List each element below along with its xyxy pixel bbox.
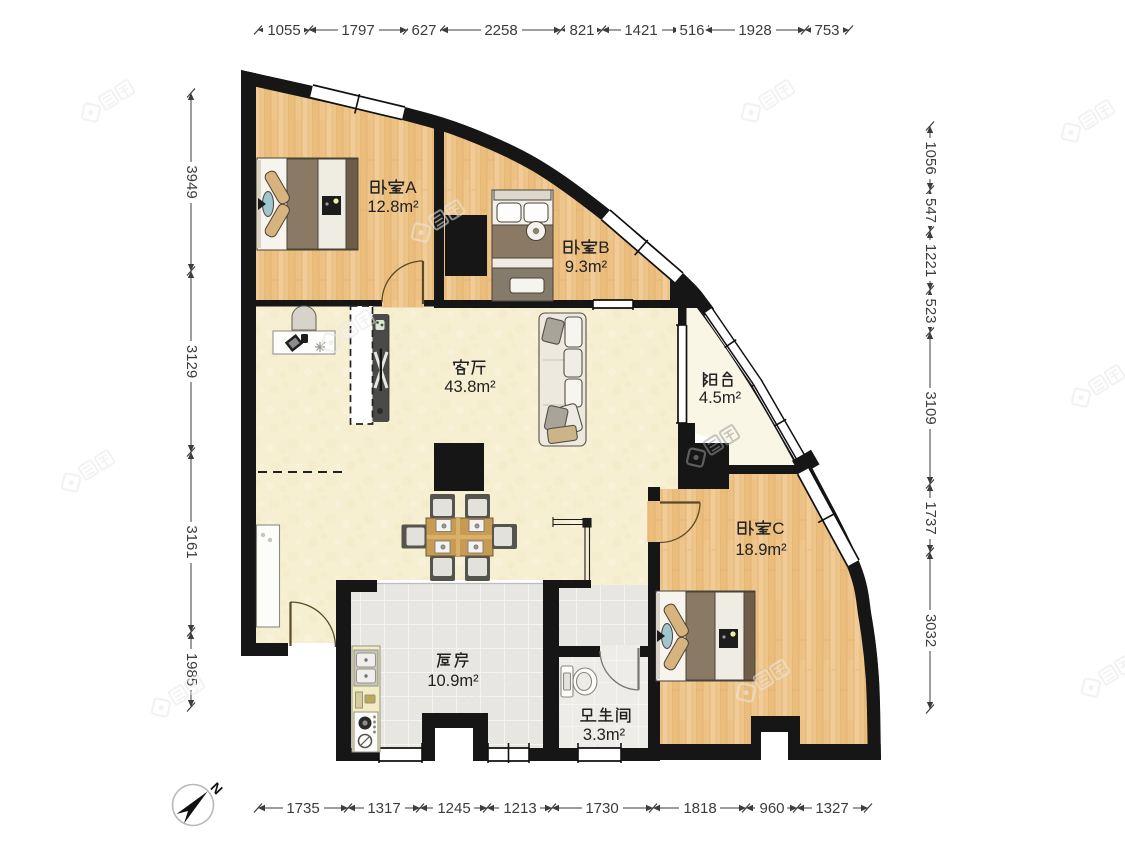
svg-text:960: 960 xyxy=(759,800,784,817)
svg-text:523: 523 xyxy=(922,298,939,323)
svg-text:3129: 3129 xyxy=(183,345,200,378)
svg-text:3032: 3032 xyxy=(922,614,939,647)
svg-text:1735: 1735 xyxy=(286,800,319,817)
svg-text:1928: 1928 xyxy=(738,22,771,39)
svg-text:1730: 1730 xyxy=(585,800,618,817)
svg-text:3161: 3161 xyxy=(183,525,200,558)
svg-text:1213: 1213 xyxy=(503,800,536,817)
svg-text:2258: 2258 xyxy=(484,22,517,39)
svg-text:1221: 1221 xyxy=(922,244,939,277)
svg-text:3109: 3109 xyxy=(922,391,939,424)
svg-text:1797: 1797 xyxy=(341,22,374,39)
svg-text:1245: 1245 xyxy=(437,800,470,817)
svg-text:627: 627 xyxy=(411,22,436,39)
svg-text:B: B xyxy=(598,238,609,257)
svg-text:3949: 3949 xyxy=(183,165,200,198)
svg-text:516: 516 xyxy=(679,22,704,39)
svg-text:18.9m²: 18.9m² xyxy=(735,541,787,559)
svg-text:1421: 1421 xyxy=(624,22,657,39)
svg-text:9.3m²: 9.3m² xyxy=(565,258,608,276)
svg-text:4.5m²: 4.5m² xyxy=(699,389,742,407)
svg-text:C: C xyxy=(772,519,784,538)
svg-text:1327: 1327 xyxy=(815,800,848,817)
svg-text:12.8m²: 12.8m² xyxy=(367,198,419,216)
svg-text:821: 821 xyxy=(569,22,594,39)
svg-text:547: 547 xyxy=(922,198,939,223)
svg-text:1818: 1818 xyxy=(683,800,716,817)
svg-text:1055: 1055 xyxy=(267,22,300,39)
svg-text:10.9m²: 10.9m² xyxy=(427,672,479,690)
svg-text:753: 753 xyxy=(814,22,839,39)
svg-text:3.3m²: 3.3m² xyxy=(583,726,626,744)
svg-text:1737: 1737 xyxy=(922,501,939,534)
svg-text:1056: 1056 xyxy=(922,141,939,174)
svg-text:A: A xyxy=(405,178,417,197)
svg-text:1317: 1317 xyxy=(367,800,400,817)
svg-text:43.8m²: 43.8m² xyxy=(444,378,496,396)
